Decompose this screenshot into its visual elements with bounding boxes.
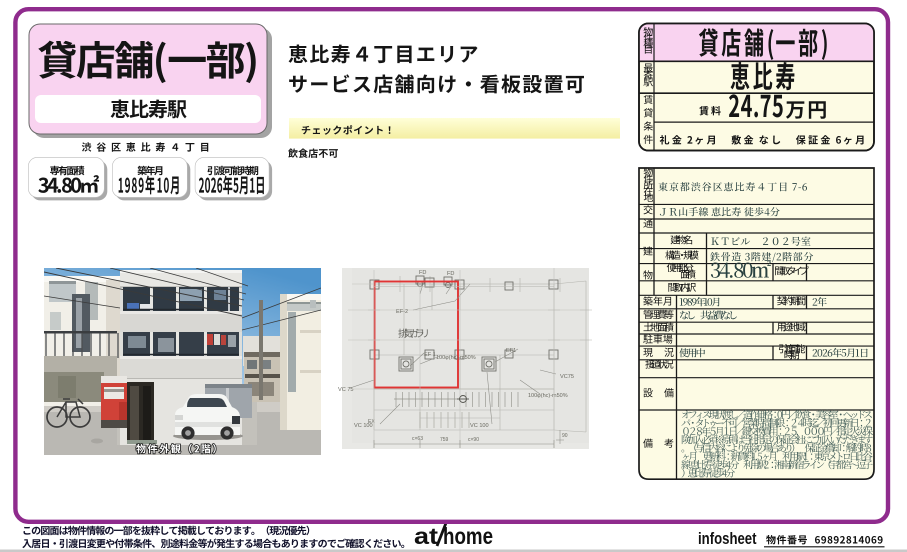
svg-text:VC 75: VC 75	[338, 387, 354, 393]
svg-text:home: home	[443, 523, 493, 549]
svg-text:100φ(hc)-m50%: 100φ(hc)-m50%	[528, 393, 568, 399]
svg-text:at: at	[414, 523, 438, 549]
svg-text:759: 759	[440, 437, 449, 443]
svg-text:FD: FD	[419, 270, 426, 276]
svg-text:VC 100: VC 100	[470, 423, 489, 429]
svg-text:c×63: c×63	[412, 436, 423, 442]
svg-text:FD: FD	[447, 271, 454, 277]
svg-text:90: 90	[562, 433, 568, 439]
svg-text:EF 1: EF 1	[424, 352, 436, 358]
svg-text:infosheet: infosheet	[698, 529, 757, 548]
svg-text:c×90: c×90	[468, 437, 479, 443]
svg-text:100φ(hc)-m50%: 100φ(hc)-m50%	[436, 355, 476, 361]
svg-text:VC75: VC75	[560, 374, 574, 380]
